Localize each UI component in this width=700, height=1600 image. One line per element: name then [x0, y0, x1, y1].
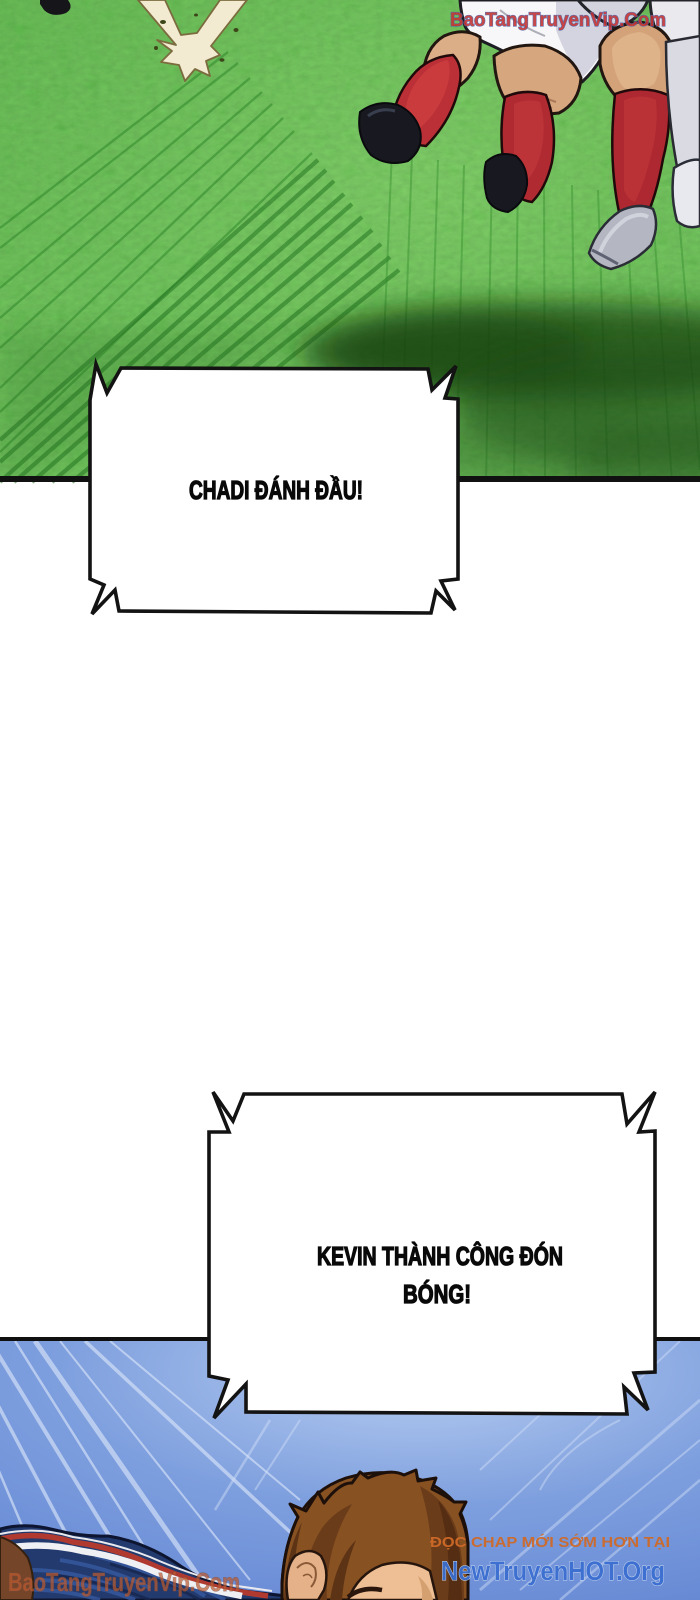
svg-text:KEVIN THÀNH CÔNG ĐÓN: KEVIN THÀNH CÔNG ĐÓN [317, 1241, 563, 1271]
svg-text:BaoTangTruyenVip.Com: BaoTangTruyenVip.Com [450, 10, 666, 31]
svg-text:BÓNG!: BÓNG! [403, 1279, 471, 1309]
svg-text:CHADI ĐÁNH ĐẦU!: CHADI ĐÁNH ĐẦU! [189, 475, 363, 505]
svg-text:BaoTangTruyenVip.Com: BaoTangTruyenVip.Com [8, 1567, 240, 1597]
svg-text:ĐỌC CHAP MỚI SỚM HƠN TẠI: ĐỌC CHAP MỚI SỚM HƠN TẠI [430, 1533, 670, 1551]
svg-text:NewTruyenHOT.Org: NewTruyenHOT.Org [441, 1556, 665, 1586]
